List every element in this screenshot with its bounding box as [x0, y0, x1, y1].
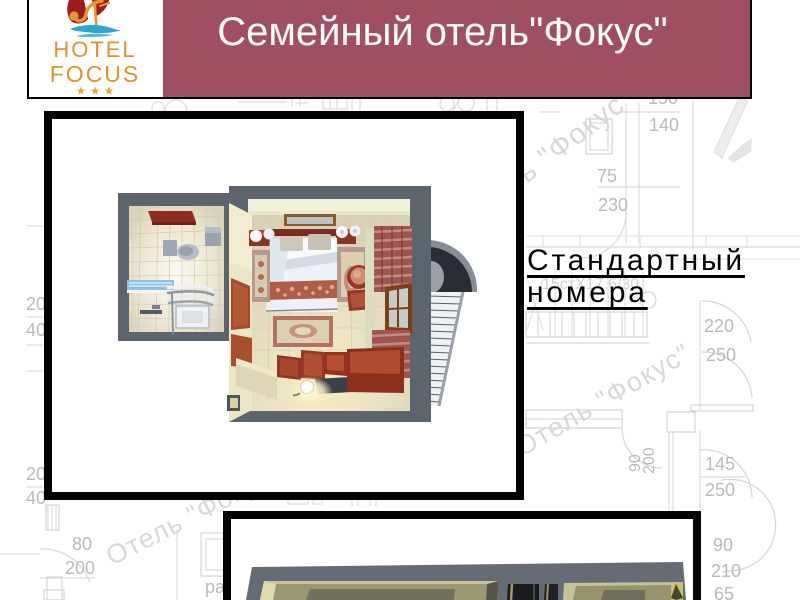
svg-text:FOCUS: FOCUS: [50, 61, 141, 87]
svg-text:220: 220: [704, 316, 734, 336]
svg-text:250: 250: [705, 480, 735, 500]
svg-text:200: 200: [65, 558, 95, 578]
svg-text:HOTEL: HOTEL: [53, 37, 136, 62]
svg-text:65: 65: [714, 584, 734, 600]
svg-text:145: 145: [705, 454, 735, 474]
svg-text:230: 230: [598, 195, 628, 215]
svg-text:140: 140: [649, 115, 679, 135]
svg-text:210: 210: [711, 561, 741, 581]
svg-text:75: 75: [597, 166, 617, 186]
svg-text:200: 200: [641, 447, 658, 474]
svg-text:Отель "Фокус": Отель "Фокус": [510, 337, 696, 462]
svg-text:90: 90: [713, 535, 733, 555]
svg-text:250: 250: [706, 345, 736, 365]
svg-text:80: 80: [72, 534, 92, 554]
